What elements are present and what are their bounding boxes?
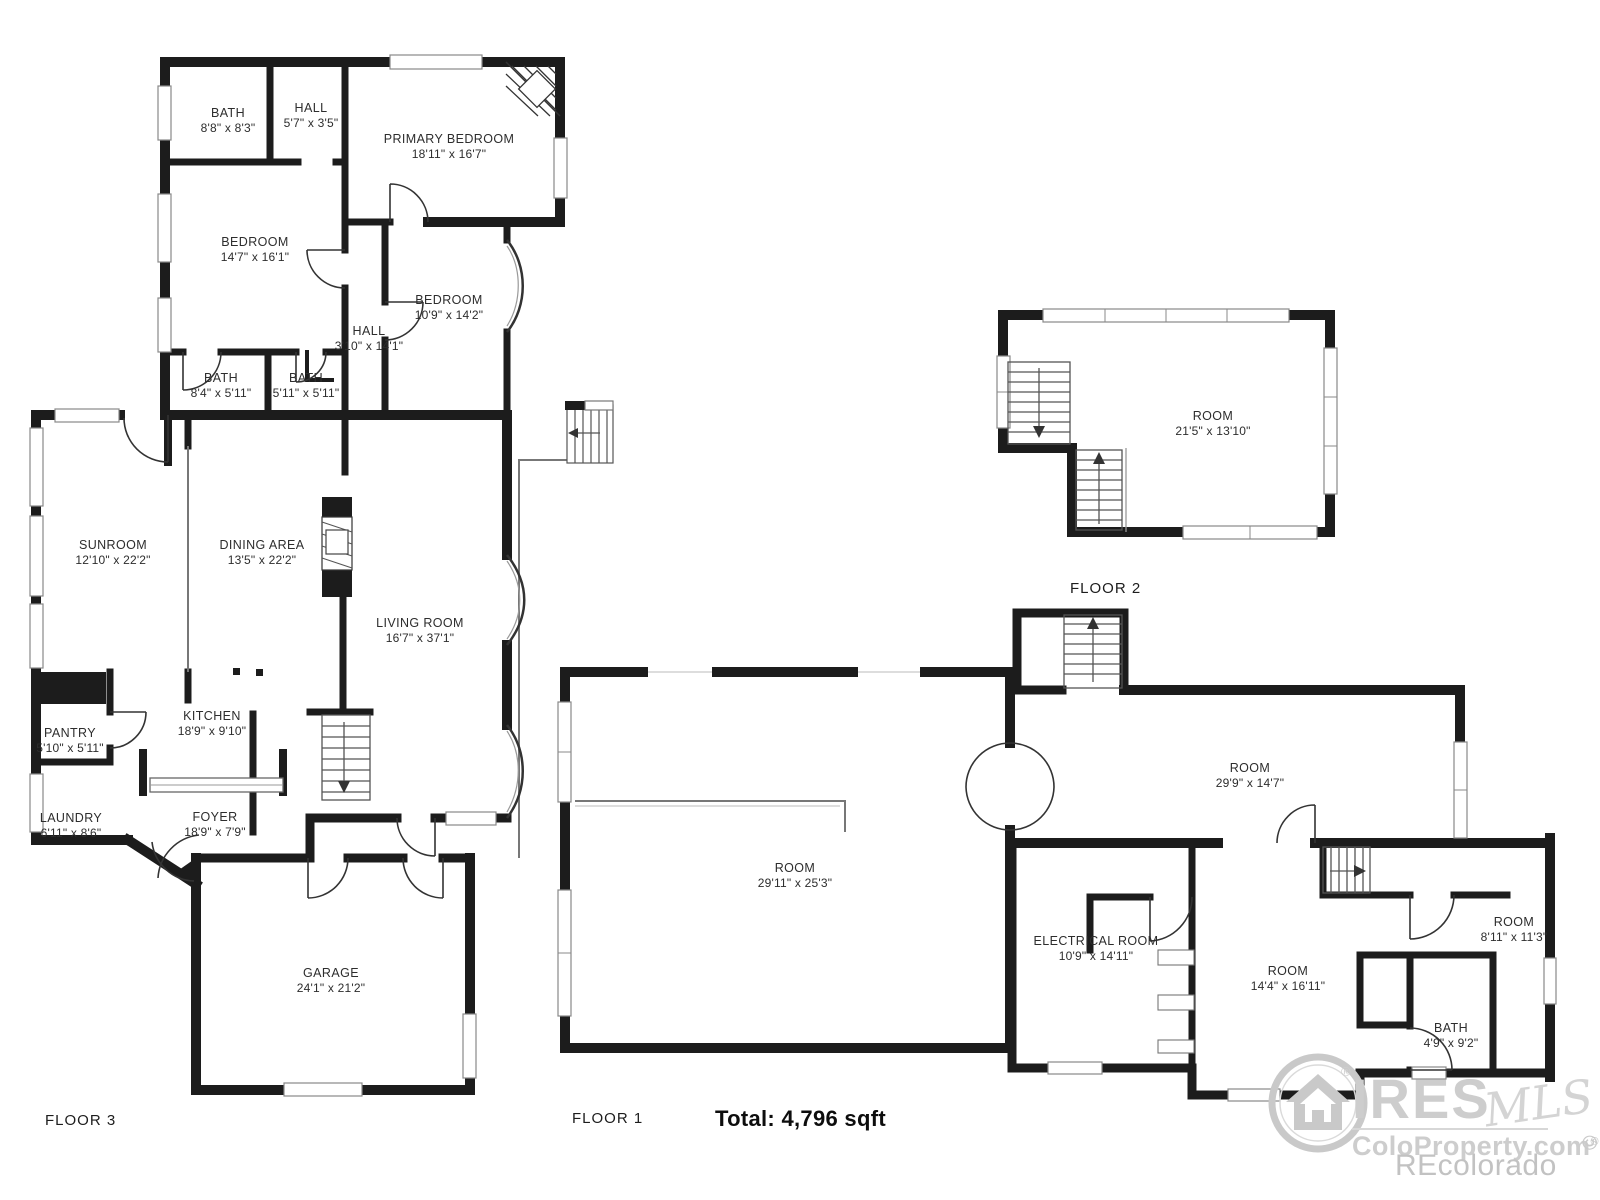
room-label-kitchen: KITCHEN18'9" x 9'10" <box>178 708 246 740</box>
fireplace <box>322 517 352 570</box>
ires-reg-mark: ® <box>1341 1064 1351 1079</box>
floor1-windows <box>558 702 1556 1101</box>
stairs-floor2-down <box>1008 362 1070 444</box>
room-label-bedroom-2: BEDROOM10'9" x 14'2" <box>415 292 483 324</box>
room-label-f1-big-room: ROOM29'11" x 25'3" <box>758 860 832 892</box>
floor3-caption: FLOOR 3 <box>45 1112 116 1129</box>
floor1-caption: FLOOR 1 <box>572 1110 643 1127</box>
room-label-laundry: LAUNDRY6'11" x 8'6" <box>40 810 102 842</box>
room-label-hall-f3a: HALL5'7" x 3'5" <box>284 100 339 132</box>
floor3-windows <box>30 55 567 1096</box>
stairs-floor2-up <box>1076 448 1126 532</box>
watermark-divider <box>1352 1128 1548 1130</box>
room-label-f1-bath: BATH4'9" x 9'2" <box>1424 1020 1479 1052</box>
floor-plan-drawing <box>0 0 1600 1200</box>
copyright-ires-vertical: © IRES <box>1580 1099 1600 1150</box>
room-label-f2-room: ROOM21'5" x 13'10" <box>1175 408 1250 440</box>
floor1-walls <box>565 613 1550 1095</box>
room-label-bath-f3a: BATH8'8" x 8'3" <box>201 105 256 137</box>
room-label-bedroom-1: BEDROOM14'7" x 16'1" <box>221 234 289 266</box>
room-label-f1-room-299: ROOM29'9" x 14'7" <box>1216 760 1284 792</box>
floor3-walls <box>36 62 560 1090</box>
room-label-bath-f3b: BATH8'4" x 5'11" <box>191 370 252 402</box>
floor2-window-ticks <box>997 309 1337 539</box>
floor-plan-page: BATH8'8" x 8'3" HALL5'7" x 3'5" PRIMARY … <box>0 0 1600 1200</box>
ires-watermark: IRES <box>1352 1066 1491 1131</box>
floor2-caption: FLOOR 2 <box>1070 580 1141 597</box>
floor2-walls <box>1003 315 1330 532</box>
interior-partial-wall <box>575 801 845 832</box>
room-label-foyer: FOYER18'9" x 7'9" <box>184 809 246 841</box>
total-sqft: Total: 4,796 sqft <box>715 1106 886 1132</box>
room-label-bath-f3c: BATH5'11" x 5'11" <box>273 370 340 402</box>
room-label-dining-area: DINING AREA13'5" x 22'2" <box>220 537 305 569</box>
floor2-windows <box>997 309 1337 539</box>
recolorado-watermark: REcolorado <box>1395 1149 1557 1183</box>
room-label-pantry: PANTRY5'10" x 5'11" <box>36 725 104 757</box>
room-label-hall-f3b: HALL3'10" x 14'1" <box>335 323 403 355</box>
room-label-primary-bedroom: PRIMARY BEDROOM18'11" x 16'7" <box>384 131 515 163</box>
kitchen-counter <box>150 778 283 792</box>
corner-hatch-primary-bedroom <box>506 62 560 116</box>
room-label-f1-room-811: ROOM8'11" x 11'3" <box>1481 914 1548 946</box>
stairs-living-room <box>322 715 370 800</box>
double-doors <box>966 743 1054 830</box>
stairs-exterior-entry <box>565 401 613 463</box>
room-label-garage: GARAGE24'1" x 21'2" <box>297 965 365 997</box>
room-label-f1-room-144: ROOM14'4" x 16'11" <box>1251 963 1325 995</box>
room-label-living-room: LIVING ROOM16'7" x 37'1" <box>376 615 464 647</box>
stairs-floor1-mid <box>1323 847 1370 893</box>
room-label-electrical-room: ELECTRICAL ROOM10'9" x 14'11" <box>1033 933 1158 965</box>
stairs-floor1-up <box>1064 615 1122 688</box>
room-label-sunroom: SUNROOM12'10" x 22'2" <box>75 537 150 569</box>
